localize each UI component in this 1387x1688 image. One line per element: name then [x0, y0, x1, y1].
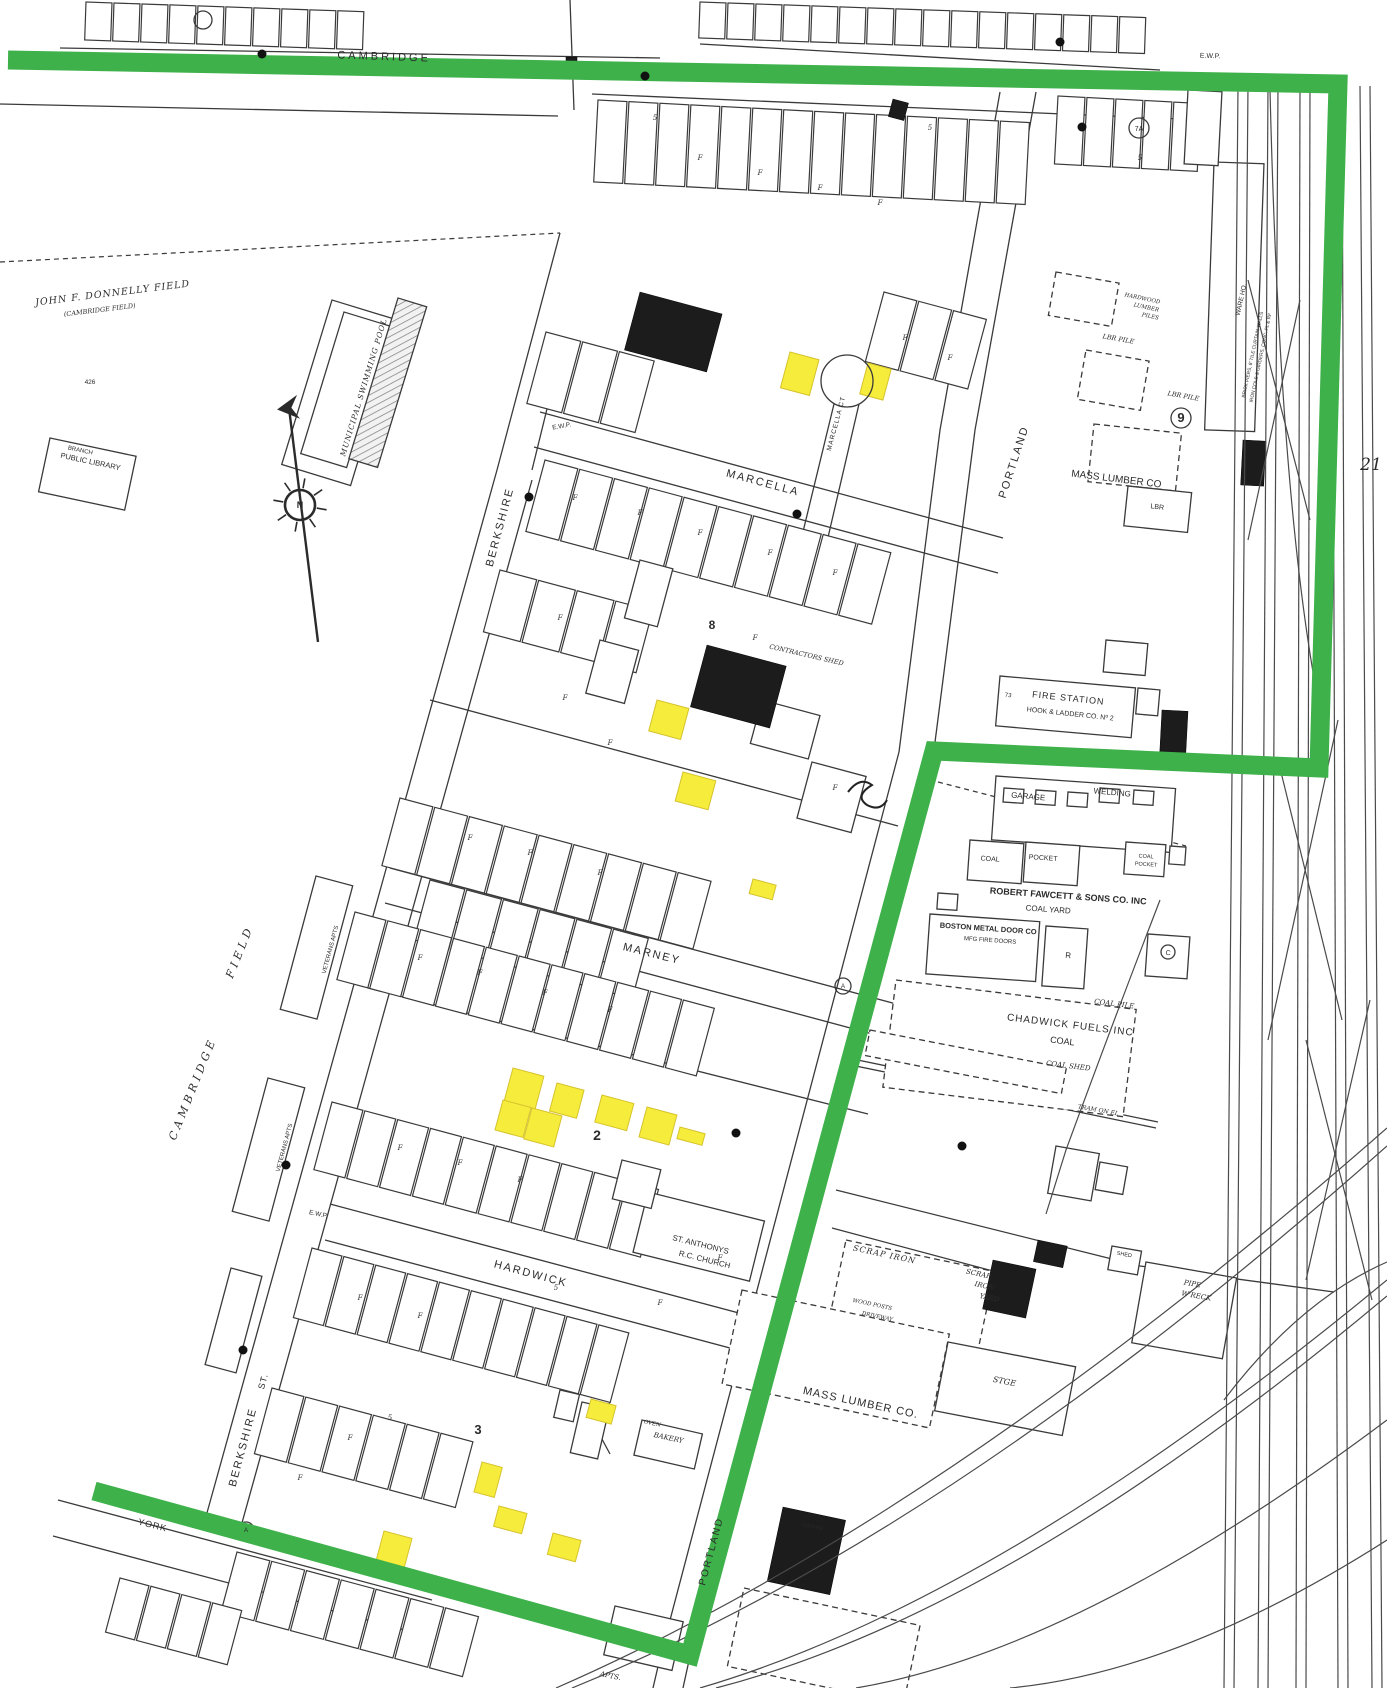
lot-building: [85, 2, 112, 41]
building-footprint: [624, 560, 672, 627]
compass-spike: [285, 483, 291, 491]
lot-letter-mark: F: [607, 739, 614, 747]
railroad-track: [1360, 86, 1372, 1688]
building-footprint: [1108, 1246, 1142, 1275]
lot-building: [839, 7, 866, 44]
lot-building: [934, 118, 967, 201]
lot-row: [106, 1578, 242, 1665]
railroad-track: [1306, 1000, 1370, 1280]
lot-letter-mark: F: [562, 694, 569, 702]
map-label: COAL YARD: [1025, 903, 1071, 915]
building-footprint: [1095, 1162, 1127, 1194]
map-label: CONTRACTORS SHED: [769, 643, 846, 668]
building-footprint: [1067, 792, 1088, 807]
lot-building: [810, 111, 843, 194]
yellow-highlight-parcel: [749, 879, 776, 900]
map-label: E.W.P.: [308, 1209, 328, 1220]
street-line: [826, 404, 859, 546]
building-footprint: [727, 1588, 920, 1688]
map-label: (CAMBRIDGE FIELD): [63, 302, 136, 319]
yellow-highlight-parcel: [474, 1462, 502, 1497]
lot-building: [309, 10, 336, 49]
map-text-labels: CAMBRIDGEE.W.P.JOHN F. DONNELLY FIELD(CA…: [33, 49, 1382, 1682]
map-label: COAL: [1138, 853, 1153, 860]
compass-spike: [310, 519, 316, 527]
lot-building: [253, 8, 280, 47]
street-line: [934, 430, 975, 750]
building-footprint: [996, 676, 1136, 738]
solid-black-building: [1033, 1240, 1067, 1268]
lot-building: [699, 2, 726, 39]
street-line: [899, 430, 940, 752]
map-label: 8: [709, 618, 716, 632]
lot-letter-mark: F: [877, 199, 884, 207]
lot-letter-mark: 5: [928, 124, 933, 132]
building-footprint: [1023, 842, 1080, 886]
hydrant-dot: [732, 1129, 741, 1138]
lot-row: [293, 1248, 628, 1402]
yellow-highlight-parcel: [549, 1083, 584, 1118]
building-footprint: [1184, 90, 1222, 166]
lot-building: [996, 121, 1029, 204]
lot-building: [783, 5, 810, 42]
yellow-highlight-parcel: [547, 1533, 581, 1562]
lot-building: [895, 9, 922, 46]
railroad-track: [1342, 86, 1348, 1688]
lot-building: [841, 113, 874, 196]
map-label: COAL: [980, 855, 1000, 863]
lot-building: [656, 103, 689, 186]
map-label: C: [1165, 950, 1171, 957]
yellow-highlight-parcel: [494, 1506, 527, 1534]
map-label: FIELD: [223, 923, 256, 981]
lot-row: [254, 1388, 473, 1508]
lot-building: [225, 7, 252, 46]
railroad-track: [1010, 1540, 1387, 1688]
fence-dashed-line: [0, 233, 560, 262]
hydrant-dot: [525, 493, 534, 502]
lot-building: [1091, 16, 1118, 53]
building-footprint: [1048, 1146, 1100, 1201]
map-label: 2: [593, 1127, 601, 1143]
map-label: PILES: [1140, 312, 1159, 322]
lot-building: [1007, 13, 1034, 50]
building-footprint: [992, 776, 1176, 852]
lot-building: [169, 5, 196, 44]
lot-building: [718, 106, 751, 189]
building-footprint: [634, 1420, 703, 1469]
lot-building: [811, 6, 838, 43]
building-footprint: [937, 893, 958, 910]
lot-building: [1083, 98, 1114, 167]
solid-black-building: [1160, 710, 1188, 755]
railroad-track: [1296, 86, 1300, 1688]
yellow-highlight-parcel: [649, 700, 689, 739]
map-label: 3: [474, 1422, 481, 1437]
lot-building: [1118, 17, 1145, 54]
building-footprint: [633, 1192, 764, 1281]
solid-black-building: [690, 645, 786, 728]
lot-building: [687, 105, 720, 188]
map-label: 7A: [1135, 126, 1144, 133]
lot-building: [923, 10, 950, 47]
building-footprint: [612, 1160, 660, 1208]
lot-letter-mark: 5: [388, 1414, 393, 1422]
lot-letter-mark: F: [657, 1299, 664, 1307]
lot-letter-mark: 5: [1138, 154, 1143, 162]
compass-spike: [317, 508, 327, 510]
lot-building: [951, 11, 978, 48]
lot-building: [281, 9, 308, 48]
compass-spike: [273, 500, 283, 502]
map-label: HARDWICK: [493, 1258, 569, 1289]
hydrant-dot: [793, 510, 802, 519]
lot-building: [872, 115, 905, 198]
hydrant-dot: [258, 50, 267, 59]
building-footprint: [1136, 688, 1160, 716]
lot-building: [748, 108, 781, 191]
lot-building: [337, 11, 364, 50]
yellow-highlight-parcel: [860, 363, 891, 400]
lot-building: [779, 110, 812, 193]
compass-spike: [314, 490, 322, 496]
hydrant-dot: [641, 72, 650, 81]
map-label: E.W.P.: [1200, 53, 1221, 61]
map-label: 21: [1359, 455, 1382, 475]
lot-letter-mark: 5: [653, 114, 658, 122]
map-label: LBR PILE: [1101, 332, 1135, 346]
compass-spike: [278, 515, 286, 521]
hydrant-dot: [1056, 38, 1065, 47]
building-footprint: [1169, 846, 1186, 865]
sanborn-map: FFFFFFFFFFFFFFFFFFFFFFFFFFFFFFFF55555 CA…: [0, 0, 1387, 1688]
yellow-highlight-parcel: [675, 772, 716, 810]
compass-spike: [295, 522, 297, 532]
railroad-track: [856, 1420, 1387, 1688]
lot-row: [1054, 96, 1200, 171]
lot-building: [867, 8, 894, 45]
lot-row: [594, 100, 1030, 204]
lot-letter-mark: F: [752, 634, 759, 642]
map-label: LBR PILE: [1166, 389, 1200, 403]
yellow-highlight-parcel: [677, 1127, 705, 1145]
map-label: N: [297, 500, 304, 510]
map-label: 426: [85, 379, 96, 386]
solid-black-building: [767, 1507, 845, 1595]
lot-row: [85, 2, 364, 50]
lot-building: [965, 119, 998, 202]
building-footprint: [1103, 640, 1148, 676]
map-label: CAMBRIDGE: [166, 1035, 219, 1142]
map-label: A: [841, 984, 845, 990]
hydrant-dot: [239, 1346, 248, 1355]
railroad-track: [1278, 760, 1342, 1020]
building-footprint: [797, 762, 866, 833]
building-footprint: [554, 1390, 580, 1422]
lot-building: [594, 100, 627, 183]
map-label: E.W.P.: [552, 421, 572, 431]
map-label: PORTLAND: [997, 424, 1032, 500]
lot-building: [727, 3, 754, 40]
railroad-track: [1370, 86, 1382, 1688]
lot-building: [1063, 15, 1090, 52]
compass-spike: [303, 478, 305, 488]
map-label: ST.: [256, 1372, 270, 1390]
map-label: 73: [1004, 693, 1012, 700]
yellow-highlight-parcel: [780, 352, 819, 396]
lot-row: [699, 2, 1146, 54]
lot-building: [141, 4, 168, 43]
street-line: [801, 404, 834, 540]
railroad-track: [1224, 1262, 1387, 1400]
building-footprint: [1048, 272, 1119, 326]
hydrant-dot: [958, 1142, 967, 1151]
building-footprint: [1077, 350, 1149, 410]
map-label: R: [1065, 951, 1072, 960]
street-line: [0, 104, 558, 116]
map-label: ROBERT FAWCETT & SONS CO. INC: [990, 886, 1148, 907]
building-footprint: [935, 1342, 1076, 1436]
map-label: A: [244, 1528, 248, 1534]
street-line: [570, 0, 574, 110]
lot-building: [755, 4, 782, 41]
map-drawing: FFFFFFFFFFFFFFFFFFFFFFFFFFFFFFFF55555 CA…: [0, 0, 1387, 1688]
yellow-highlight-parcel: [595, 1095, 634, 1131]
map-label: APTS.: [598, 1670, 621, 1682]
map-label: 9: [1177, 410, 1184, 425]
building-footprint: [205, 1268, 262, 1373]
lot-building: [113, 3, 140, 42]
building-footprint: [280, 876, 352, 1019]
lot-letter-mark: F: [297, 1474, 304, 1482]
yellow-highlight-parcel: [639, 1107, 677, 1145]
hydrant-dot: [1078, 123, 1087, 132]
building-footprint: [1133, 790, 1154, 805]
lot-building: [979, 12, 1006, 49]
